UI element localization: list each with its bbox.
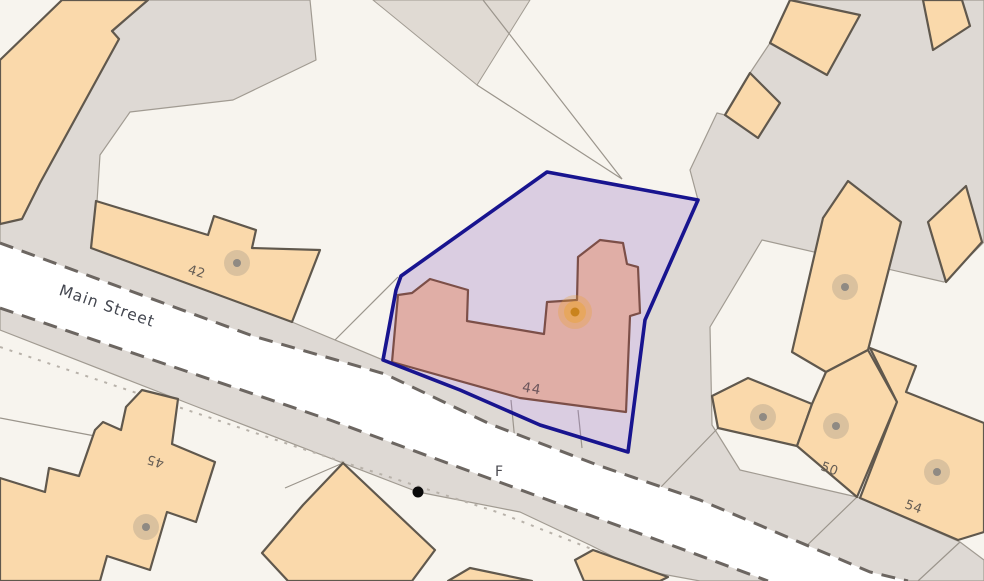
map-canvas[interactable]: Main Street 42 44 45 50 54 F: [0, 0, 984, 581]
building-marker-54: [924, 459, 950, 485]
building-marker-50: [823, 413, 849, 439]
map-container[interactable]: Main Street 42 44 45 50 54 F: [0, 0, 984, 581]
boundary-node-dot: [413, 487, 424, 498]
building-marker-right-tall: [832, 274, 858, 300]
building-marker-50-left: [750, 404, 776, 430]
road-partial-label-f: F: [495, 464, 503, 480]
selected-property-marker[interactable]: [558, 295, 592, 329]
plot-label-44: 44: [521, 379, 543, 398]
building-marker-45: [133, 514, 159, 540]
building-marker-42: [224, 250, 250, 276]
